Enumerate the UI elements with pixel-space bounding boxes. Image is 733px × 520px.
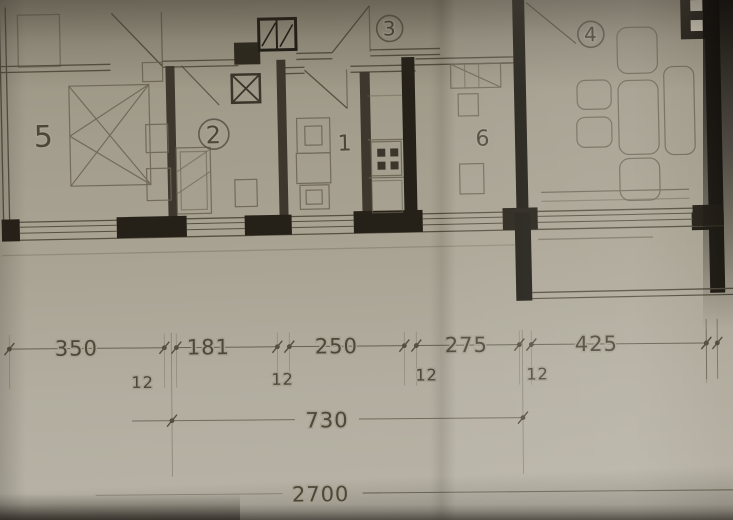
dimension-total-2700: 2700 bbox=[292, 482, 350, 507]
plan-layer: 521364 bbox=[0, 0, 733, 312]
room-label: 6 bbox=[475, 126, 491, 151]
wall-thickness-label: 12 bbox=[131, 373, 154, 392]
wall-thickness-label: 12 bbox=[415, 365, 438, 384]
wall-thickness-label: 12 bbox=[271, 370, 294, 389]
dimension-total-730: 730 bbox=[305, 408, 348, 432]
dimension-value: 275 bbox=[445, 333, 488, 357]
room-label: 2 bbox=[205, 121, 222, 149]
floorplan-photo: 521364 350181250275425121212127302700 bbox=[0, 0, 733, 520]
room-label: 5 bbox=[33, 120, 54, 155]
room-label: 4 bbox=[584, 22, 598, 46]
dimension-value: 350 bbox=[55, 336, 98, 360]
room-label: 1 bbox=[337, 131, 353, 156]
dimension-layer: 350181250275425121212127302700 bbox=[4, 319, 733, 509]
dimension-value: 250 bbox=[315, 334, 358, 358]
walls-layer bbox=[0, 0, 733, 312]
room-label: 3 bbox=[383, 16, 397, 40]
dimension-value: 425 bbox=[575, 332, 618, 356]
wall-thickness-label: 12 bbox=[526, 364, 549, 383]
floor-plan-svg: 521364 350181250275425121212127302700 bbox=[0, 0, 733, 520]
dimension-value: 181 bbox=[187, 335, 230, 359]
